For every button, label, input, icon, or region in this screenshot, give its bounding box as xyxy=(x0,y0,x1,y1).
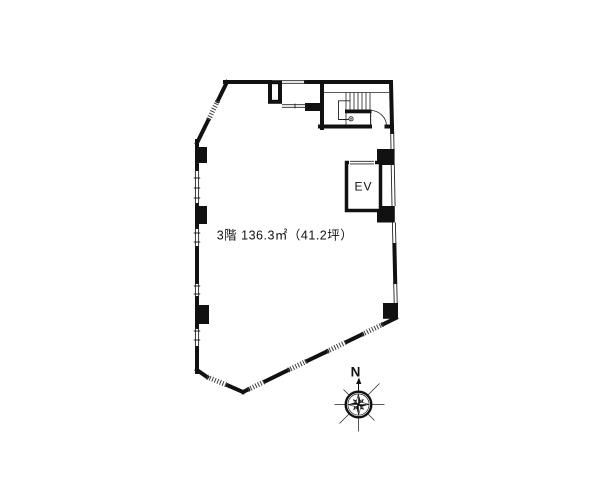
window-right-3 xyxy=(394,282,398,303)
pier-left-2 xyxy=(195,206,207,224)
window-left-2 xyxy=(194,227,200,248)
hatch-bottom-right-1 xyxy=(248,381,265,389)
window-right-2 xyxy=(392,223,396,246)
window-left-3 xyxy=(194,282,200,298)
pier-right-corner xyxy=(383,303,398,319)
floor-area-label: 3階 136.3㎡（41.2坪） xyxy=(217,228,354,243)
elevator-label: EV xyxy=(354,180,372,194)
stairwell xyxy=(320,84,392,128)
window-left-1 xyxy=(194,169,200,205)
window-openings xyxy=(194,81,397,348)
north-label: N xyxy=(351,365,361,380)
wall-diagonal-bottom-right xyxy=(243,318,396,392)
stair-door xyxy=(371,111,387,127)
window-top xyxy=(282,81,307,84)
elevator-shaft: EV xyxy=(347,159,381,210)
hatch-bottom-left xyxy=(207,377,228,386)
pier-left-3 xyxy=(195,305,209,324)
wall-piers xyxy=(195,103,398,324)
wall-stub-alcove xyxy=(305,103,322,111)
wall-diagonal-upper-left xyxy=(197,82,227,143)
stair-landing-bar xyxy=(345,110,372,114)
hatch-bottom-right-4 xyxy=(362,324,383,334)
stair-walk-start-dot xyxy=(350,118,352,120)
window-hatches xyxy=(207,101,383,390)
wall-right-middle xyxy=(394,245,395,282)
pier-left-1 xyxy=(195,147,207,163)
hatch-bottom-right-3 xyxy=(327,342,347,352)
floor-plan-page: EV 3階 136.3㎡（41.2坪） xyxy=(0,0,600,486)
floor-plan-canvas: EV 3階 136.3㎡（41.2坪） xyxy=(0,0,600,486)
hatch-upper-left xyxy=(208,101,217,120)
pillar-shaft xyxy=(270,82,280,102)
wall-diagonal-bottom-left xyxy=(197,370,243,392)
compass: N xyxy=(335,365,385,432)
window-right-1 xyxy=(391,132,394,149)
stair-treads xyxy=(324,93,389,126)
stair-door-arc xyxy=(371,111,387,127)
window-right-ev-channel xyxy=(391,165,395,206)
hatch-bottom-right-2 xyxy=(288,361,307,370)
compass-center-dot xyxy=(357,403,360,406)
window-alcove xyxy=(282,104,306,109)
north-arrow-icon xyxy=(356,378,361,392)
window-left-4 xyxy=(194,327,200,348)
